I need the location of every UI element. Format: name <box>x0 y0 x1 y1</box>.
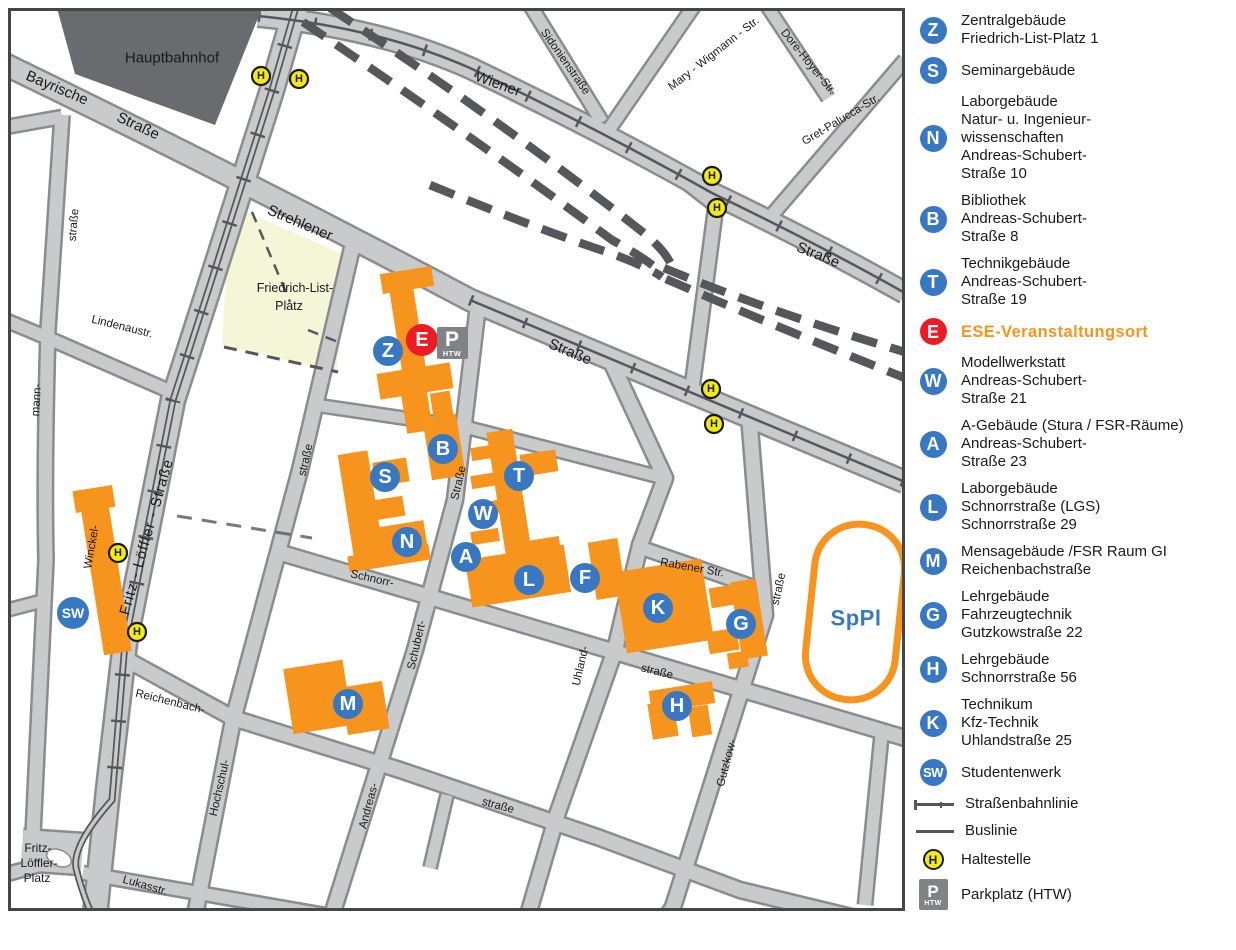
legend-item-sw: SWStudentenwerk <box>916 759 1232 786</box>
tram-line-icon <box>916 803 954 806</box>
parking-marker-p: PHTW <box>437 327 468 359</box>
building-marker-w: W <box>468 499 498 529</box>
legend-item-e: EESE-Veranstaltungsort <box>916 318 1232 345</box>
sw-marker-sw: SW <box>57 597 89 629</box>
building-marker-a: A <box>451 542 481 572</box>
building-marker-t: T <box>504 461 534 491</box>
svg-text:H: H <box>114 547 122 559</box>
building-badge-icon: K <box>916 710 950 737</box>
svg-text:F: F <box>579 567 591 589</box>
legend: ZZentralgebäudeFriedrich-List-Platz 1SSe… <box>916 8 1232 910</box>
legend-item-label: TechnikumKfz-TechnikUhlandstraße 25 <box>961 696 1072 750</box>
legend-item-m: MMensagebäude /FSR Raum GIReichenbachstr… <box>916 543 1232 579</box>
tram-stop-icon: H <box>290 70 308 88</box>
svg-text:E: E <box>415 329 428 351</box>
map-label: mann- <box>30 383 44 417</box>
map-label: Platz <box>24 871 51 885</box>
svg-text:H: H <box>707 383 715 395</box>
legend-item-s: SSeminargebäude <box>916 57 1232 84</box>
legend-item-label: LehrgebäudeFahrzeugtechnikGutzkowstraße … <box>961 588 1083 642</box>
parking-icon: PHTW <box>916 879 950 910</box>
map-label: Fritz- <box>24 841 51 855</box>
building-marker-k: K <box>643 593 673 623</box>
svg-text:L: L <box>523 569 535 591</box>
legend-item-label: Mensagebäude /FSR Raum GIReichenbachstra… <box>961 543 1167 579</box>
map-label: SpPl <box>831 606 882 631</box>
svg-text:T: T <box>513 465 525 487</box>
svg-text:N: N <box>400 531 414 553</box>
building-marker-s: S <box>370 462 400 492</box>
legend-item-label: TechnikgebäudeAndreas-Schubert-Straße 19 <box>961 255 1087 309</box>
legend-item-tram: Straßenbahnlinie <box>916 795 1232 813</box>
svg-text:Z: Z <box>382 340 394 362</box>
svg-text:B: B <box>436 438 450 460</box>
legend-item-label: Parkplatz (HTW) <box>961 886 1072 904</box>
building-marker-m: M <box>333 689 363 719</box>
tram-stop-icon: H <box>109 544 127 562</box>
legend-item-label: LaborgebäudeSchnorrstraße (LGS)Schnorrst… <box>961 480 1100 534</box>
campus-map-svg: HauptbahnhofBayrischeStraßeStrehlenerStr… <box>8 8 905 911</box>
building-marker-h: H <box>662 691 692 721</box>
legend-item-label: LaborgebäudeNatur- u. Ingenieur-wissensc… <box>961 93 1091 183</box>
legend-item-label: ModellwerkstattAndreas-Schubert-Straße 2… <box>961 354 1087 408</box>
tram-stop-icon: H <box>128 623 146 641</box>
legend-item-g: GLehrgebäudeFahrzeugtechnikGutzkowstraße… <box>916 588 1232 642</box>
legend-item-label: Haltestelle <box>961 851 1031 869</box>
legend-item-a: AA-Gebäude (Stura / FSR-Räume)Andreas-Sc… <box>916 417 1232 471</box>
building-badge-icon: B <box>916 206 950 233</box>
legend-item-t: TTechnikgebäudeAndreas-Schubert-Straße 1… <box>916 255 1232 309</box>
svg-text:H: H <box>670 695 684 717</box>
legend-item-label: Studentenwerk <box>961 764 1061 782</box>
svg-text:K: K <box>651 597 666 619</box>
building-badge-icon: L <box>916 494 950 521</box>
legend-item-k: KTechnikumKfz-TechnikUhlandstraße 25 <box>916 696 1232 750</box>
tram-stop-icon: H <box>703 167 721 185</box>
page: HauptbahnhofBayrischeStraßeStrehlenerStr… <box>0 0 1236 950</box>
legend-item-label: Buslinie <box>965 822 1018 840</box>
legend-item-label: Straßenbahnlinie <box>965 795 1078 813</box>
legend-item-label: BibliothekAndreas-Schubert-Straße 8 <box>961 192 1087 246</box>
legend-item-label: Seminargebäude <box>961 62 1075 80</box>
legend-item-label: LehrgebäudeSchnorrstraße 56 <box>961 651 1077 687</box>
svg-text:HTW: HTW <box>443 349 462 358</box>
svg-text:G: G <box>733 613 749 635</box>
legend-item-n: NLaborgebäudeNatur- u. Ingenieur-wissens… <box>916 93 1232 183</box>
building-marker-n: N <box>392 527 422 557</box>
svg-text:A: A <box>459 546 473 568</box>
map-label: Platz <box>275 299 303 313</box>
building-badge-icon: W <box>916 368 950 395</box>
svg-text:P: P <box>445 328 459 351</box>
building-badge-icon: G <box>916 602 950 629</box>
tram-stop-icon: H <box>702 380 720 398</box>
legend-item-h: HHaltestelle <box>916 849 1232 870</box>
building-badge-icon: N <box>916 125 950 152</box>
legend-item-z: ZZentralgebäudeFriedrich-List-Platz 1 <box>916 12 1232 48</box>
svg-text:H: H <box>133 626 141 638</box>
tram-stop-icon: H <box>705 415 723 433</box>
svg-text:S: S <box>378 466 391 488</box>
event-badge-icon: E <box>916 318 950 345</box>
legend-item-bus: Buslinie <box>916 822 1232 840</box>
building-marker-g: G <box>726 609 756 639</box>
svg-text:H: H <box>708 170 716 182</box>
legend-item-label: A-Gebäude (Stura / FSR-Räume)Andreas-Sch… <box>961 417 1184 471</box>
building-badge-icon: M <box>916 548 950 575</box>
tram-stop-icon: H <box>916 849 950 870</box>
map-label: Friedrich-List- <box>257 281 333 295</box>
building-badge-icon: Z <box>916 17 950 44</box>
building-badge-icon: SW <box>916 759 950 786</box>
svg-text:H: H <box>295 73 303 85</box>
building-g-part <box>727 651 749 670</box>
svg-text:SW: SW <box>62 605 85 621</box>
legend-item-label: ZentralgebäudeFriedrich-List-Platz 1 <box>961 12 1099 48</box>
building-marker-f: F <box>570 563 600 593</box>
building-badge-icon: H <box>916 656 950 683</box>
map-label: Hauptbahnhof <box>125 50 220 67</box>
tram-stop-icon: H <box>708 199 726 217</box>
svg-text:H: H <box>713 202 721 214</box>
building-badge-icon: T <box>916 269 950 296</box>
building-badge-icon: A <box>916 431 950 458</box>
svg-text:H: H <box>257 70 265 82</box>
legend-item-b: BBibliothekAndreas-Schubert-Straße 8 <box>916 192 1232 246</box>
building-marker-b: B <box>428 434 458 464</box>
tram-stop-icon: H <box>252 67 270 85</box>
svg-text:H: H <box>710 418 718 430</box>
map-label: Löffler- <box>20 856 57 870</box>
legend-item-l: LLaborgebäudeSchnorrstraße (LGS)Schnorrs… <box>916 480 1232 534</box>
legend-item-p: PHTWParkplatz (HTW) <box>916 879 1232 910</box>
building-marker-z: Z <box>373 336 403 366</box>
campus-map: HauptbahnhofBayrischeStraßeStrehlenerStr… <box>8 8 905 911</box>
event-marker-e: E <box>406 324 438 356</box>
legend-item-label: ESE-Veranstaltungsort <box>961 323 1148 341</box>
svg-text:M: M <box>340 693 357 715</box>
legend-item-h: HLehrgebäudeSchnorrstraße 56 <box>916 651 1232 687</box>
svg-text:W: W <box>474 503 493 525</box>
legend-item-w: WModellwerkstattAndreas-Schubert-Straße … <box>916 354 1232 408</box>
bus-line-icon <box>916 830 954 833</box>
building-badge-icon: S <box>916 57 950 84</box>
building-marker-l: L <box>514 565 544 595</box>
